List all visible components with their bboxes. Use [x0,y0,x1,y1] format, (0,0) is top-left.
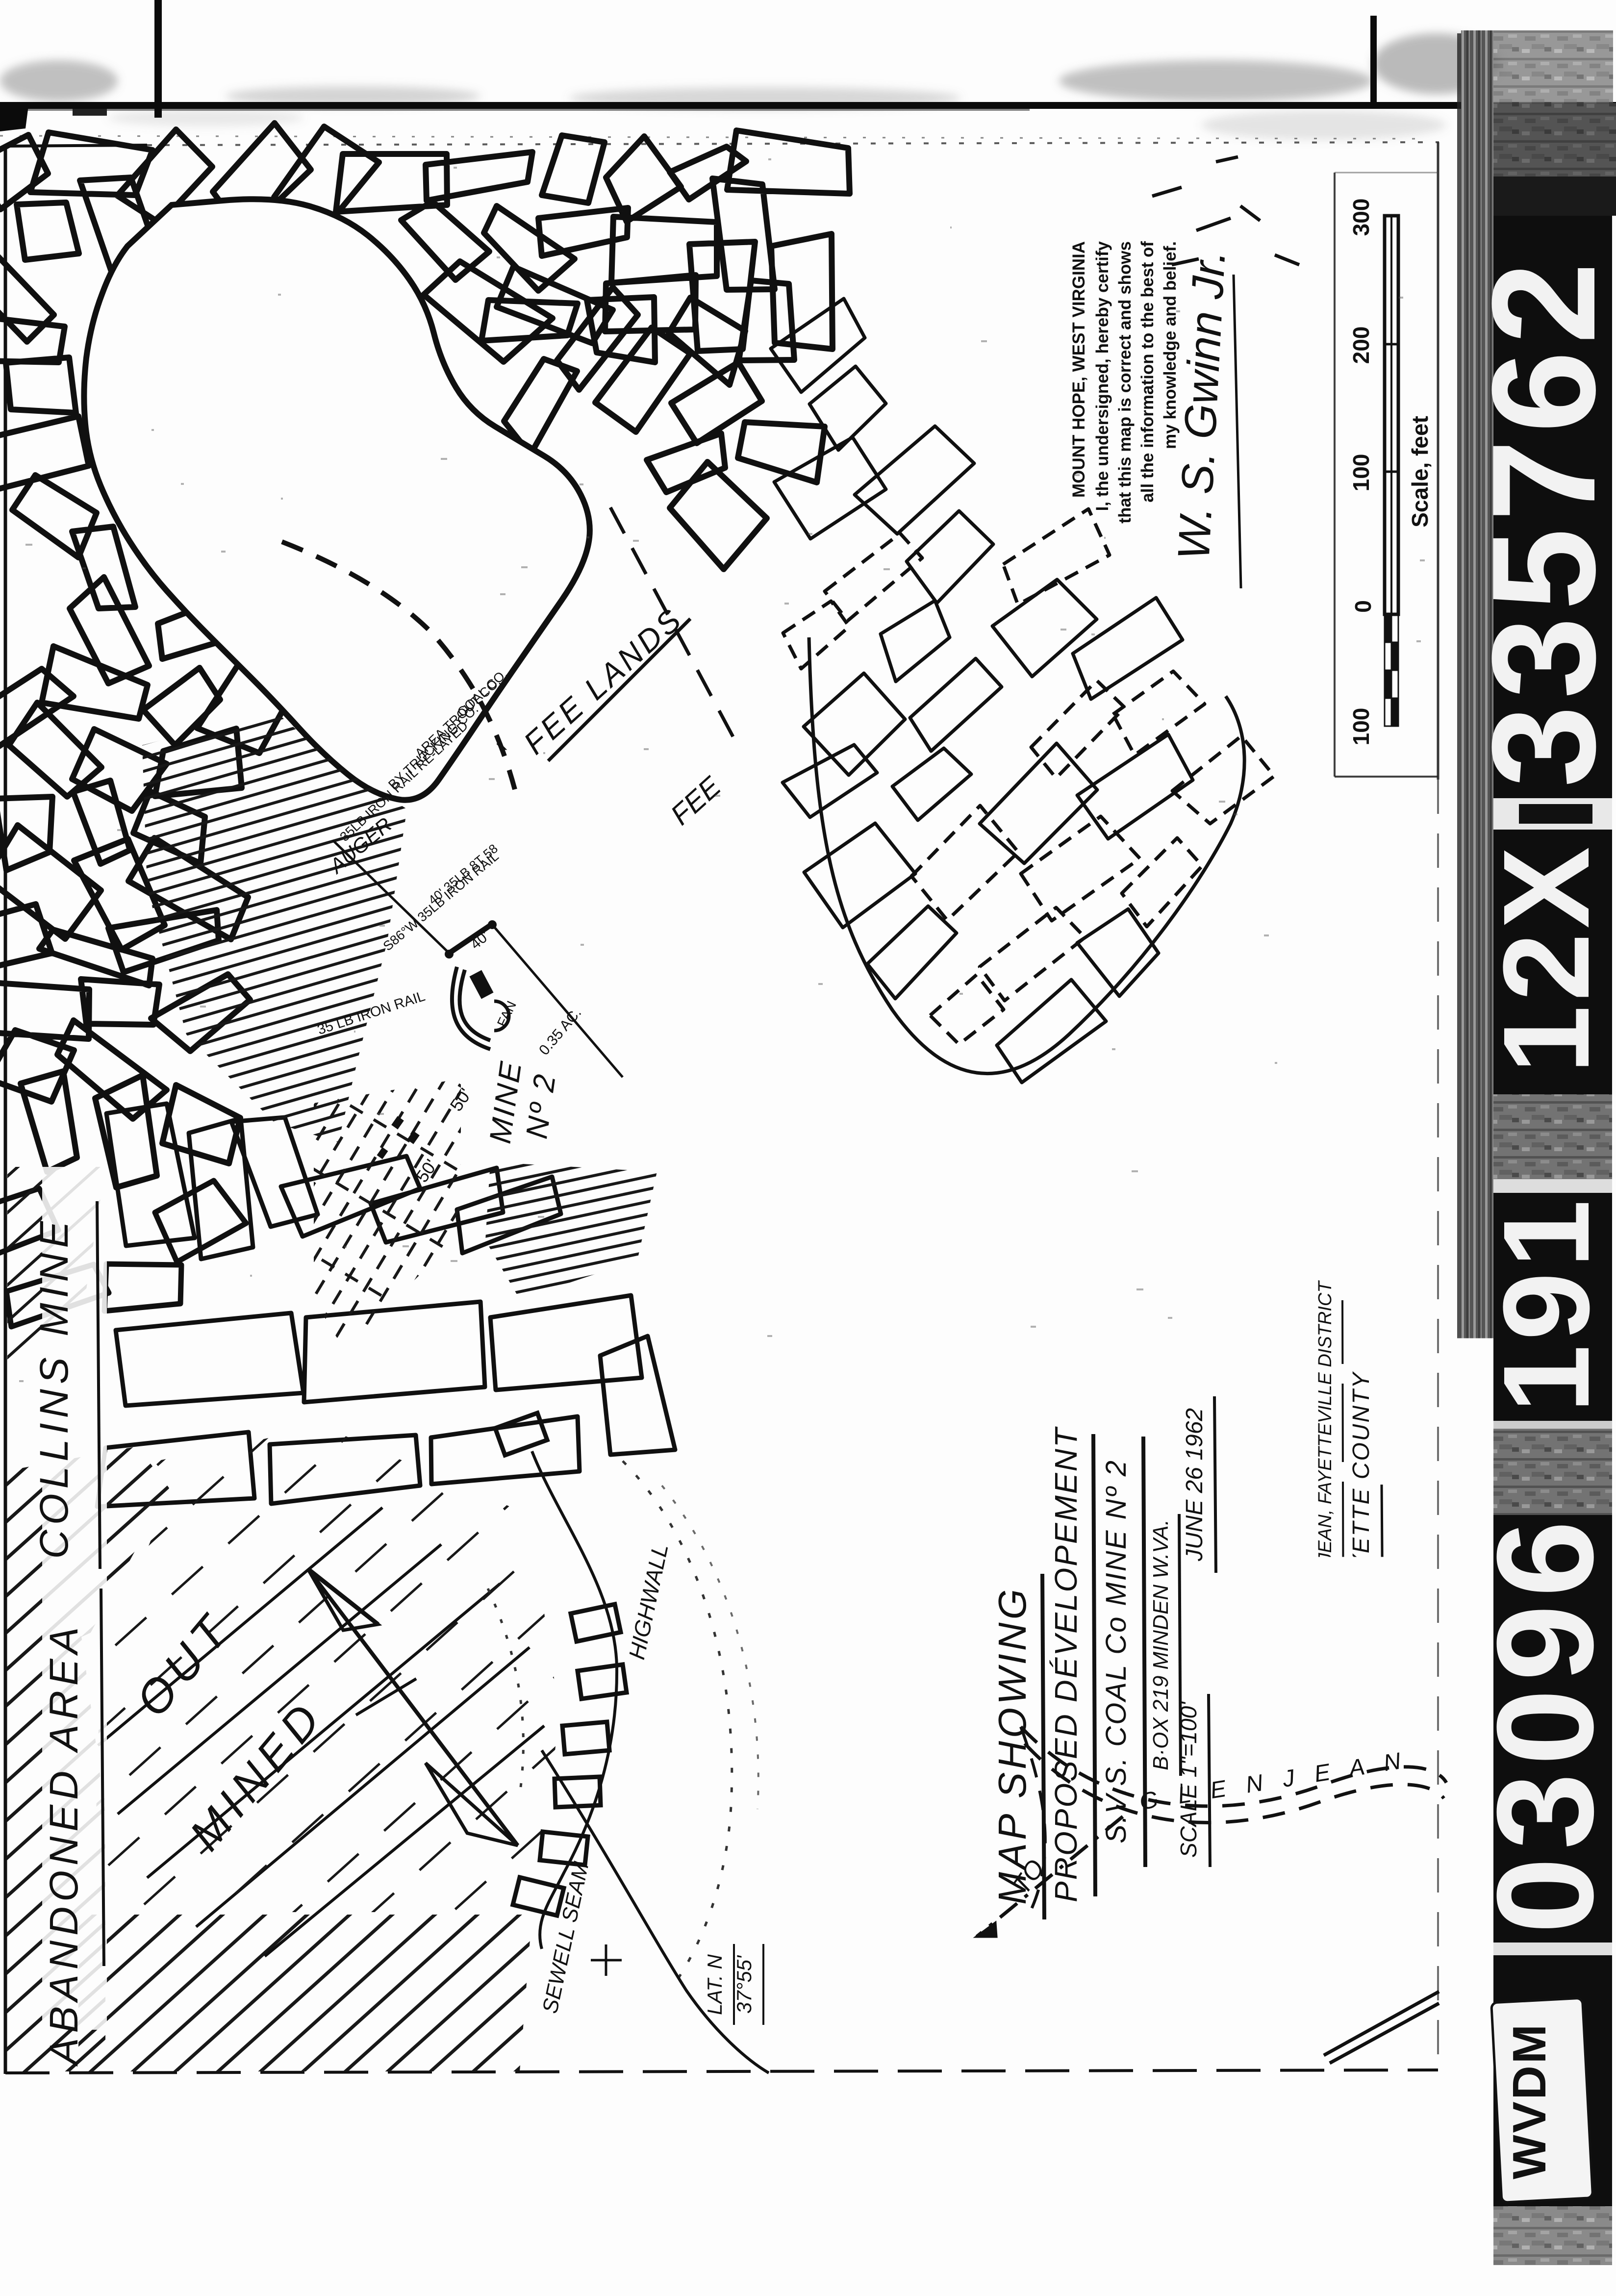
svg-text:0: 0 [1350,600,1376,613]
svg-text:B·OX 219 MINDEN W.VA.: B·OX 219 MINDEN W.VA. [1149,1519,1173,1770]
svg-text:MAP SHOWING: MAP SHOWING [990,1586,1034,1905]
svg-text:335762: 335762 [1461,255,1616,787]
svg-text:COLLINS MINE: COLLINS MINE [32,1216,76,1559]
svg-text:all the information to the bes: all the information to the best of [1138,241,1157,503]
svg-text:S.V.S. COAL Co MINE Nº 2: S.V.S. COAL Co MINE Nº 2 [1100,1459,1132,1843]
svg-text:JUNE 26 1962: JUNE 26 1962 [1182,1408,1208,1562]
svg-text:ABANDONED AREA: ABANDONED AREA [42,1622,86,2067]
svg-text:WVDM: WVDM [1503,2022,1556,2179]
svg-text:100: 100 [1348,454,1374,492]
svg-text:300: 300 [1348,199,1374,236]
svg-text:37°55': 37°55' [732,1955,756,2014]
svg-text:191: 191 [1478,1195,1615,1413]
svg-text:Scale, feet: Scale, feet [1407,416,1433,528]
svg-text:100: 100 [1348,708,1374,746]
svg-text:03096: 03096 [1469,1513,1616,1934]
svg-text:SCALE 1"=100': SCALE 1"=100' [1176,1701,1201,1858]
svg-text:12X: 12X [1478,842,1615,1074]
svg-text:I, the undersigned, hereby cer: I, the undersigned, hereby certify [1093,241,1112,511]
svg-text:that this map is correct and s: that this map is correct and shows [1115,241,1135,524]
svg-text:FAYETTE COUNTY: FAYETTE COUNTY [1348,1371,1374,1600]
svg-text:MOUNT HOPE, WEST VIRGINIA: MOUNT HOPE, WEST VIRGINIA [1069,241,1088,498]
svg-text:NEAR GLEN JEAN, FAYETTEVILLE: NEAR GLEN JEAN, FAYETTEVILLE DISTRICT [1315,1280,1336,1675]
svg-text:PROPOSED DÉVELOPEMENT: PROPOSED DÉVELOPEMENT [1048,1426,1084,1902]
svg-text:LAT. N: LAT. N [703,1954,726,2015]
svg-text:200: 200 [1348,327,1374,364]
